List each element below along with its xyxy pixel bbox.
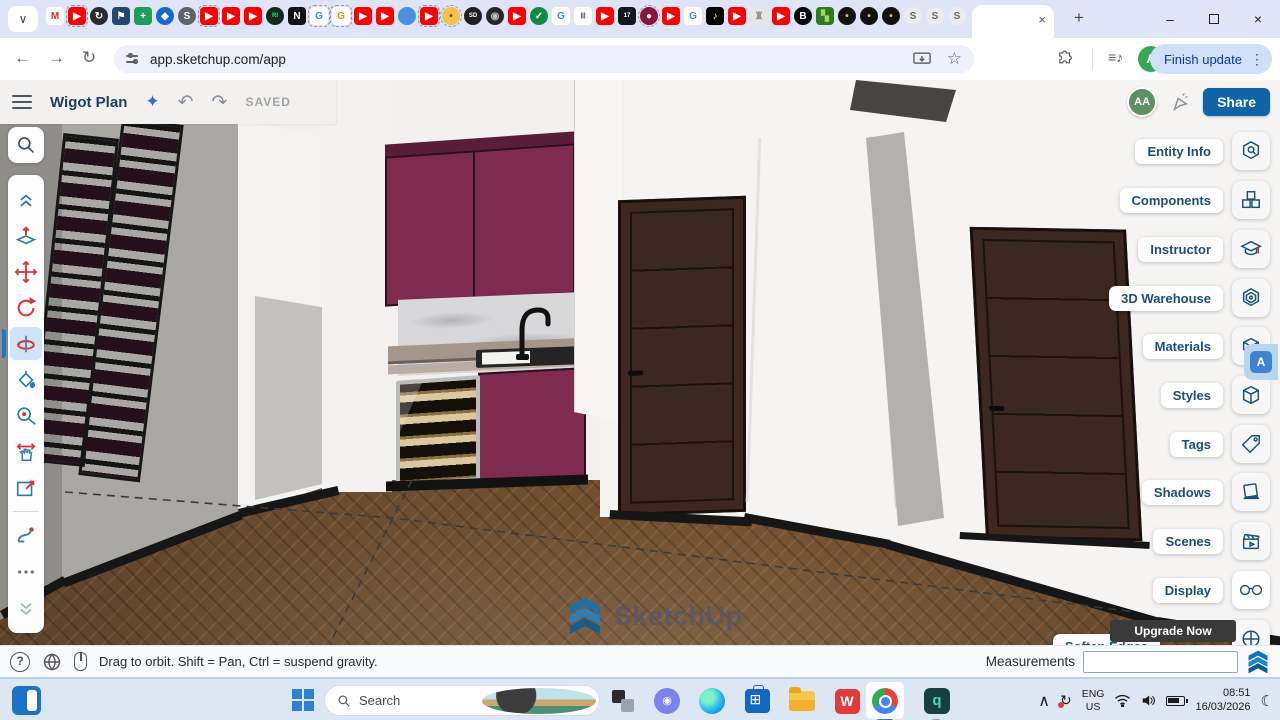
bing-daily-image[interactable] xyxy=(482,688,597,714)
maximize-button[interactable] xyxy=(1192,11,1236,27)
panel-styles[interactable]: Styles xyxy=(1161,376,1270,414)
pinned-tab[interactable]: S xyxy=(948,7,966,25)
pinned-tab[interactable]: B xyxy=(794,7,812,25)
pinned-tab[interactable]: ▚ xyxy=(816,7,834,25)
clock[interactable]: 08:5116/03/2026 xyxy=(1195,687,1250,715)
search-icon xyxy=(16,135,36,155)
pinned-tab[interactable]: RI xyxy=(266,7,284,25)
panel-entity-info[interactable]: Entity Info xyxy=(1135,132,1270,170)
orbit-tool[interactable] xyxy=(10,327,42,360)
undo-button[interactable]: ↶ xyxy=(178,91,194,114)
extensions-puzzle-icon[interactable] xyxy=(1056,50,1074,68)
pinned-tab[interactable]: SD xyxy=(464,7,482,25)
pinned-tab[interactable]: G xyxy=(684,7,702,25)
send-feedback-icon[interactable] xyxy=(1169,91,1191,113)
url-text[interactable]: app.sketchup.com/app xyxy=(150,52,286,67)
pinned-tab[interactable]: ▶ xyxy=(772,7,790,25)
file-explorer-icon[interactable] xyxy=(787,686,817,716)
offset-hand-tool[interactable] xyxy=(10,435,42,468)
pinned-tab[interactable]: ▶ xyxy=(244,7,262,25)
pinned-tab[interactable]: ▶ xyxy=(354,7,372,25)
move-tool[interactable] xyxy=(10,255,42,288)
search-tools-button[interactable] xyxy=(8,127,44,163)
panel-components[interactable]: Components xyxy=(1120,181,1270,219)
share-button[interactable]: Share xyxy=(1203,88,1270,116)
instructor-icon[interactable] xyxy=(1232,230,1270,268)
pinned-tab[interactable]: M xyxy=(46,7,64,25)
pinned-tab[interactable]: ◉ xyxy=(486,7,504,25)
media-playlist-icon[interactable]: ≡♪ xyxy=(1108,49,1123,65)
tool-divider xyxy=(13,511,39,512)
paint-bucket-tool[interactable] xyxy=(10,363,42,396)
volume-icon[interactable] xyxy=(1141,694,1156,707)
language-globe-icon[interactable] xyxy=(42,652,62,672)
panel-shadows[interactable]: Shadows xyxy=(1142,473,1270,511)
saved-status: SAVED xyxy=(245,95,290,109)
sketchup-logo-small xyxy=(1246,649,1270,675)
browser-tab-strip: ∨ M▶↻⚑+◆S▶▶▶RINGG▶▶▶•SD◉▶✓G|||▶17●▶G♪▶♜▶… xyxy=(0,0,1280,38)
microsoft-store-icon[interactable] xyxy=(742,686,772,716)
tool-palette xyxy=(8,175,44,633)
pinned-tab[interactable]: G xyxy=(332,7,350,25)
collapse-down-icon[interactable] xyxy=(10,591,42,624)
pinned-tab[interactable]: S xyxy=(178,7,196,25)
ai-sparkle-icon[interactable]: ✦ xyxy=(145,92,159,112)
panel-instructor[interactable]: Instructor xyxy=(1138,230,1270,268)
forward-button[interactable]: → xyxy=(48,48,65,68)
sketchup-logo xyxy=(566,596,604,636)
door-handle xyxy=(628,370,643,376)
chrome-menu-icon[interactable]: ⋮ xyxy=(1250,51,1264,68)
language-indicator[interactable]: ENGUS xyxy=(1082,688,1105,712)
window-controls: – × xyxy=(1148,0,1280,38)
pinned-tab[interactable]: S xyxy=(926,7,944,25)
pinned-tab[interactable]: • xyxy=(860,7,878,25)
warehouse-icon[interactable] xyxy=(1232,279,1270,317)
translate-icon: A xyxy=(1250,351,1272,373)
pinned-tab[interactable]: ▶ xyxy=(376,7,394,25)
measurements-input[interactable] xyxy=(1083,651,1238,673)
panel-display[interactable]: Display xyxy=(1153,571,1270,609)
hamburger-menu-icon[interactable] xyxy=(12,95,32,109)
soften-edges-icon[interactable] xyxy=(1232,620,1270,645)
search-placeholder: Search xyxy=(359,693,474,708)
search-icon xyxy=(337,694,351,708)
windows-taskbar: Search ◉ W q ∧ ↻ ENGUS 08:5116/03/2026 ☾ xyxy=(0,677,1280,720)
base-cabinet-maroon xyxy=(478,367,586,483)
panel-3d-warehouse[interactable]: 3D Warehouse xyxy=(1109,279,1270,317)
status-hint-text: Drag to orbit. Shift = Pan, Ctrl = suspe… xyxy=(99,654,378,669)
kitchen-right-panel xyxy=(574,80,622,422)
reload-button[interactable]: ↻ xyxy=(82,48,96,68)
tab-close-icon[interactable]: × xyxy=(1038,12,1046,27)
user-avatar[interactable]: AA xyxy=(1127,87,1157,117)
active-tab[interactable]: × xyxy=(972,5,1054,38)
door-left xyxy=(618,196,746,516)
pinned-tab[interactable]: • xyxy=(838,7,856,25)
finish-update-label: Finish update xyxy=(1164,52,1242,67)
measurements-label: Measurements xyxy=(986,654,1075,669)
panel-tags[interactable]: Tags xyxy=(1170,425,1270,463)
wps-office-icon[interactable]: W xyxy=(832,686,862,716)
start-button[interactable] xyxy=(292,689,314,711)
sketchup-status-bar: ? Drag to orbit. Shift = Pan, Ctrl = sus… xyxy=(0,645,1280,677)
upgrade-now-badge[interactable]: Upgrade Now xyxy=(1110,620,1236,642)
bookmark-star-icon[interactable]: ☆ xyxy=(947,49,962,69)
chrome-icon[interactable] xyxy=(870,686,900,716)
pinned-tab[interactable]: ⚑ xyxy=(112,7,130,25)
edge-icon[interactable] xyxy=(697,686,727,716)
system-tray: ∧ ↻ ENGUS 08:5116/03/2026 ☾ xyxy=(1038,679,1274,720)
tape-measure-tool[interactable] xyxy=(10,399,42,432)
sketchup-topbar: Wigot Plan ✦ ↶ ↷ SAVED xyxy=(0,80,336,124)
site-settings-icon[interactable] xyxy=(126,53,140,65)
display-icon[interactable] xyxy=(1232,571,1270,609)
pinned-tab[interactable]: ✓ xyxy=(530,7,548,25)
more-tools-button[interactable] xyxy=(10,555,42,588)
pinned-tab[interactable]: • xyxy=(442,7,460,25)
battery-icon[interactable] xyxy=(1166,696,1185,706)
pinned-tab[interactable]: ▶ xyxy=(222,7,240,25)
install-app-icon[interactable] xyxy=(913,52,931,67)
pinned-tab[interactable]: • xyxy=(882,7,900,25)
shadows-icon[interactable] xyxy=(1232,473,1270,511)
upper-cabinet-maroon xyxy=(385,143,575,306)
panel-scenes[interactable]: Scenes xyxy=(1153,522,1270,560)
wine-fridge xyxy=(396,375,480,487)
tray-chevron-icon[interactable]: ∧ xyxy=(1038,691,1050,711)
browser-toolbar: ← → ↻ app.sketchup.com/app ☆ ≡♪ A Finish… xyxy=(0,38,1280,80)
pinned-tab[interactable]: N xyxy=(288,7,306,25)
pinned-tab[interactable]: ♜ xyxy=(750,7,768,25)
viewport-3d[interactable]: SketchUp xyxy=(0,80,1280,645)
pinned-tab[interactable]: ♪ xyxy=(706,7,724,25)
translate-extension-bubble[interactable]: A xyxy=(1244,344,1278,380)
pinned-tab[interactable]: ▶ xyxy=(596,7,614,25)
pinned-tab[interactable]: ▶ xyxy=(662,7,680,25)
pinned-tabs: M▶↻⚑+◆S▶▶▶RINGG▶▶▶•SD◉▶✓G|||▶17●▶G♪▶♜▶B▚… xyxy=(46,7,966,25)
task-view-icon[interactable] xyxy=(608,686,638,716)
wifi-icon[interactable] xyxy=(1114,694,1131,707)
collapse-up-icon[interactable] xyxy=(10,183,42,216)
pinned-tab[interactable]: ● xyxy=(640,7,658,25)
door-handle xyxy=(989,406,1004,411)
pinned-tab[interactable]: ▶ xyxy=(200,7,218,25)
pinned-tab[interactable]: ↻ xyxy=(90,7,108,25)
redo-button[interactable]: ↷ xyxy=(212,91,228,114)
door-right xyxy=(970,227,1143,541)
minimize-button[interactable]: – xyxy=(1148,11,1192,27)
widgets-icon[interactable] xyxy=(12,686,41,715)
pinned-tab[interactable]: G xyxy=(552,7,570,25)
pinned-tab[interactable]: ▶ xyxy=(420,7,438,25)
styles-icon[interactable] xyxy=(1232,376,1270,414)
components-icon[interactable] xyxy=(1232,181,1270,219)
tab-list-chevron-icon[interactable]: ∨ xyxy=(8,6,38,32)
pinned-tab[interactable]: + xyxy=(134,7,152,25)
pinned-tab[interactable]: ◆ xyxy=(156,7,174,25)
faucet xyxy=(512,302,556,360)
help-icon[interactable]: ? xyxy=(10,652,30,672)
document-title[interactable]: Wigot Plan xyxy=(50,94,127,111)
sketchup-watermark: SketchUp xyxy=(566,596,743,636)
walk-tool[interactable] xyxy=(10,519,42,552)
toolbar-divider xyxy=(1092,48,1093,70)
kitchen-left-panel xyxy=(322,80,392,492)
back-button[interactable]: ← xyxy=(14,48,31,68)
push-pull-tool[interactable] xyxy=(10,219,42,252)
pinned-tab[interactable]: 17 xyxy=(618,7,636,25)
q-app-icon[interactable]: q xyxy=(922,686,952,716)
pinned-tab[interactable]: ▶ xyxy=(728,7,746,25)
section-plane-tool[interactable] xyxy=(10,471,42,504)
chat-icon[interactable]: ◉ xyxy=(652,686,682,716)
entity-info-icon[interactable] xyxy=(1232,132,1270,170)
scenes-icon[interactable] xyxy=(1232,522,1270,560)
pinned-tab[interactable] xyxy=(398,7,416,25)
pinned-tab[interactable]: ▶ xyxy=(508,7,526,25)
rotate-tool[interactable] xyxy=(10,291,42,324)
address-bar[interactable]: app.sketchup.com/app ☆ xyxy=(114,45,974,73)
close-button[interactable]: × xyxy=(1236,11,1280,27)
tags-icon[interactable] xyxy=(1232,425,1270,463)
pinned-tab[interactable]: S xyxy=(904,7,922,25)
taskbar-search[interactable]: Search xyxy=(324,685,600,716)
new-tab-button[interactable]: + xyxy=(1074,8,1084,28)
mouse-hints-icon[interactable] xyxy=(74,652,87,671)
pinned-tab[interactable]: ▶ xyxy=(68,7,86,25)
pinned-tab[interactable]: G xyxy=(310,7,328,25)
pinned-tab[interactable]: ||| xyxy=(574,7,592,25)
night-mode-icon[interactable]: ☾ xyxy=(1261,692,1274,710)
sync-update-icon[interactable]: ↻ xyxy=(1060,692,1072,709)
finish-update-button[interactable]: Finish update ⋮ xyxy=(1150,44,1272,74)
